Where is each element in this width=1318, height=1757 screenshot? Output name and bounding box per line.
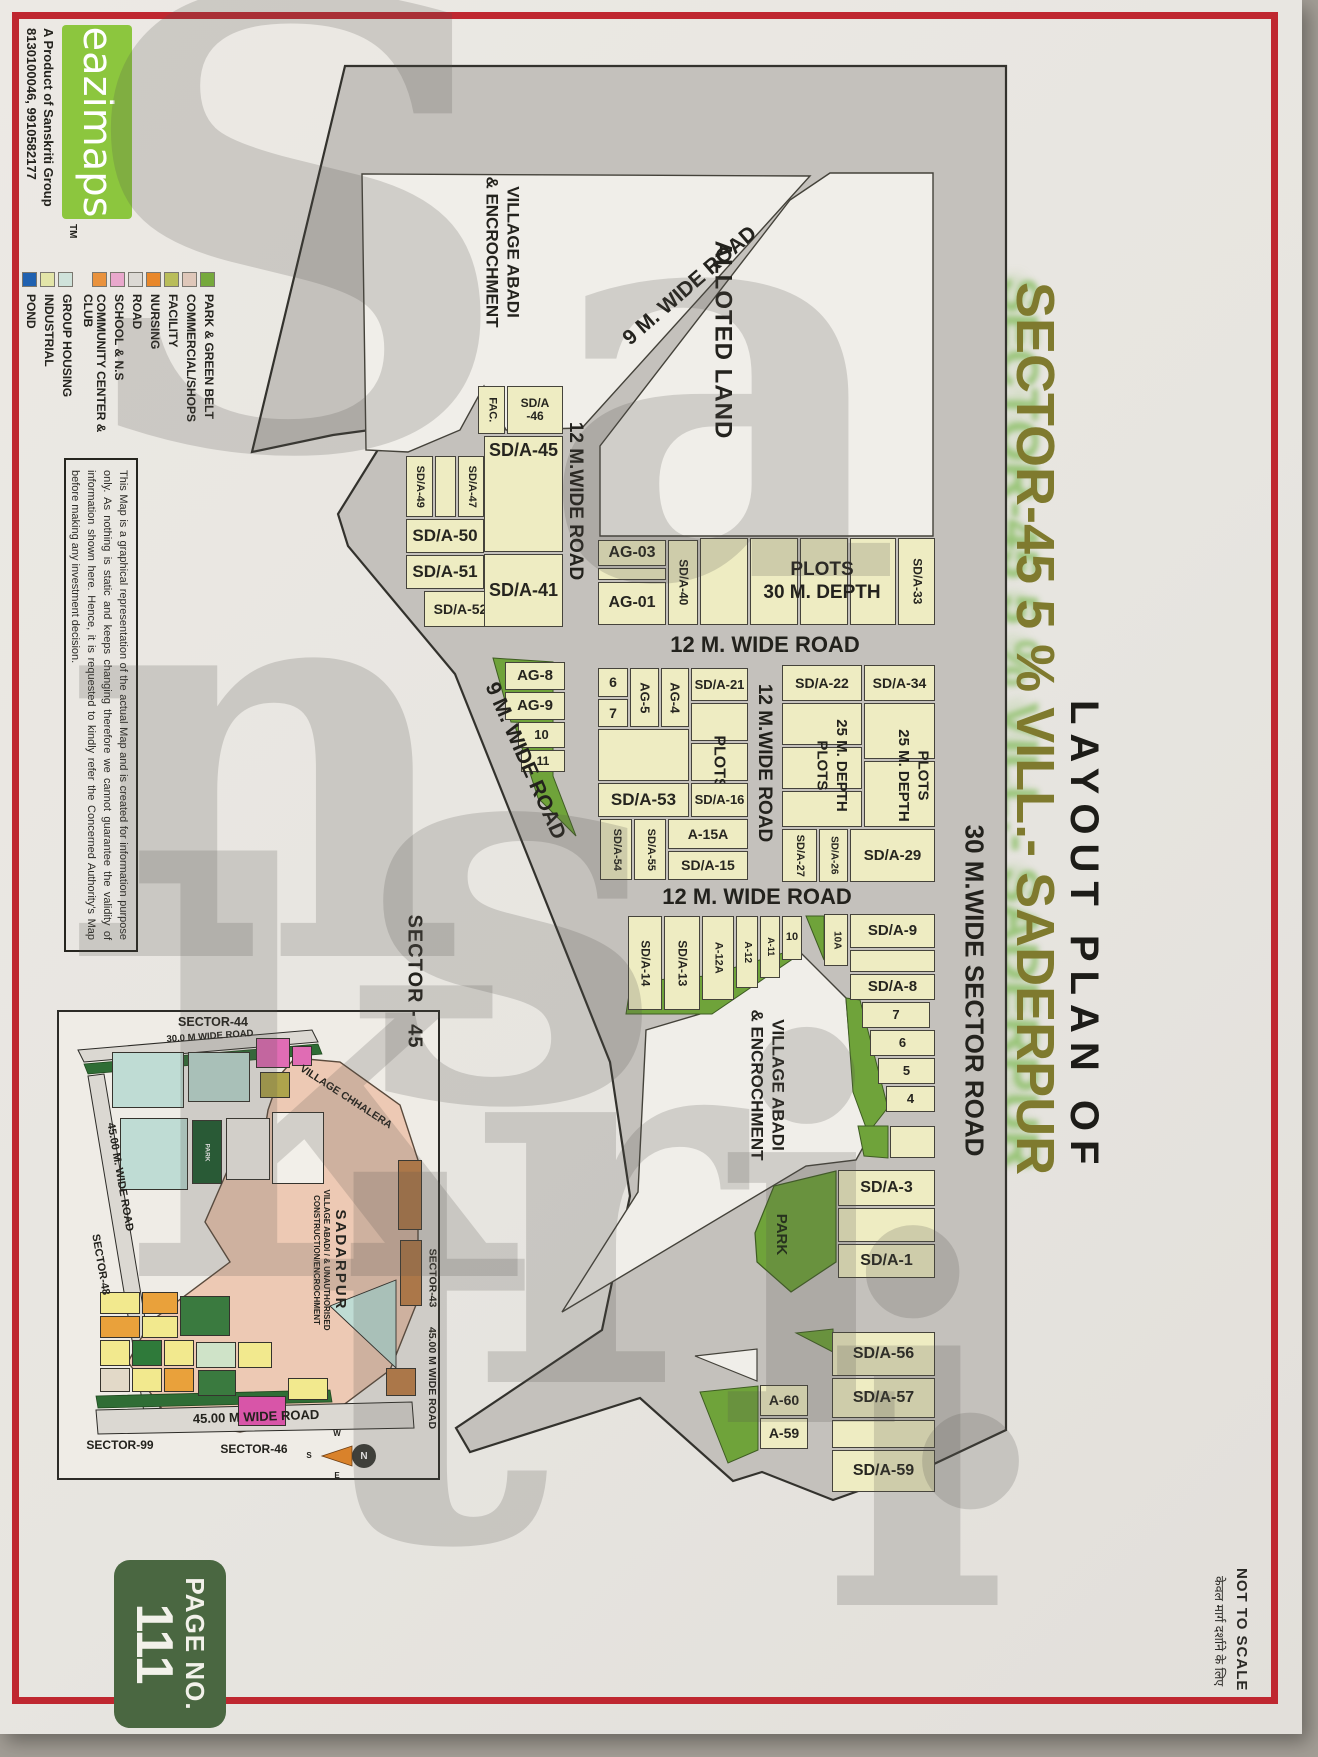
inset-block-khaki bbox=[260, 1072, 290, 1098]
inset-sadarpur-label: SADARPUR VILLAGE ABADI / & UNAUTHORISED … bbox=[300, 1155, 360, 1365]
inset-block-teal-2 bbox=[188, 1052, 250, 1102]
inset-block-o2 bbox=[100, 1316, 140, 1338]
inset-compass-w: W bbox=[332, 1428, 342, 1438]
inset-block-teal-3 bbox=[120, 1118, 188, 1190]
inset-block-o1 bbox=[142, 1292, 178, 1314]
inset-block-brown-1 bbox=[398, 1160, 422, 1230]
inset-block-y5 bbox=[132, 1368, 162, 1392]
inset-block-y2 bbox=[142, 1316, 178, 1338]
inset-sector-99-label: SECTOR-99 bbox=[78, 1438, 162, 1452]
inset-block-y3 bbox=[100, 1340, 130, 1366]
inset-block-teal-1 bbox=[112, 1052, 184, 1108]
inset-block-pink-1 bbox=[256, 1038, 290, 1068]
inset-sector-43-label: SECTOR-43 bbox=[424, 1238, 440, 1318]
inset-block-g1 bbox=[132, 1340, 162, 1366]
inset-map-drawing bbox=[0, 0, 1318, 1757]
inset-block-y4 bbox=[164, 1340, 194, 1366]
inset-block-teal-4 bbox=[196, 1342, 236, 1368]
inset-road45-right-label: 45.00 M WIDE ROAD bbox=[424, 1322, 440, 1434]
inset-block-o3 bbox=[164, 1368, 194, 1392]
sector-45-layout-map: FAC. SD/A -46 SD/A-45 SD/A-49 SD/A-47 SD… bbox=[0, 0, 1318, 1757]
inset-sector-46-label: SECTOR-46 bbox=[212, 1442, 296, 1456]
inset-block-y7 bbox=[288, 1378, 328, 1400]
photographed-map-page: { "page": { "number_label": "PAGE NO.", … bbox=[0, 0, 1318, 1757]
inset-block-darkpark-1 bbox=[180, 1296, 230, 1336]
inset-block-darkpark-2 bbox=[198, 1370, 236, 1396]
inset-block-w3 bbox=[100, 1368, 130, 1392]
inset-title-sector-45: SECTOR - 45 bbox=[350, 968, 478, 994]
inset-compass-arrow bbox=[322, 1446, 352, 1466]
inset-block-brown-2 bbox=[400, 1240, 422, 1306]
inset-compass-e: E bbox=[332, 1470, 342, 1480]
inset-block-white-1 bbox=[226, 1118, 270, 1180]
inset-block-park: PARK bbox=[192, 1120, 222, 1184]
inset-compass-n: N bbox=[358, 1450, 370, 1462]
inset-block-brown-3 bbox=[386, 1368, 416, 1396]
inset-block-y6 bbox=[238, 1342, 272, 1368]
inset-compass-s: S bbox=[304, 1450, 314, 1460]
